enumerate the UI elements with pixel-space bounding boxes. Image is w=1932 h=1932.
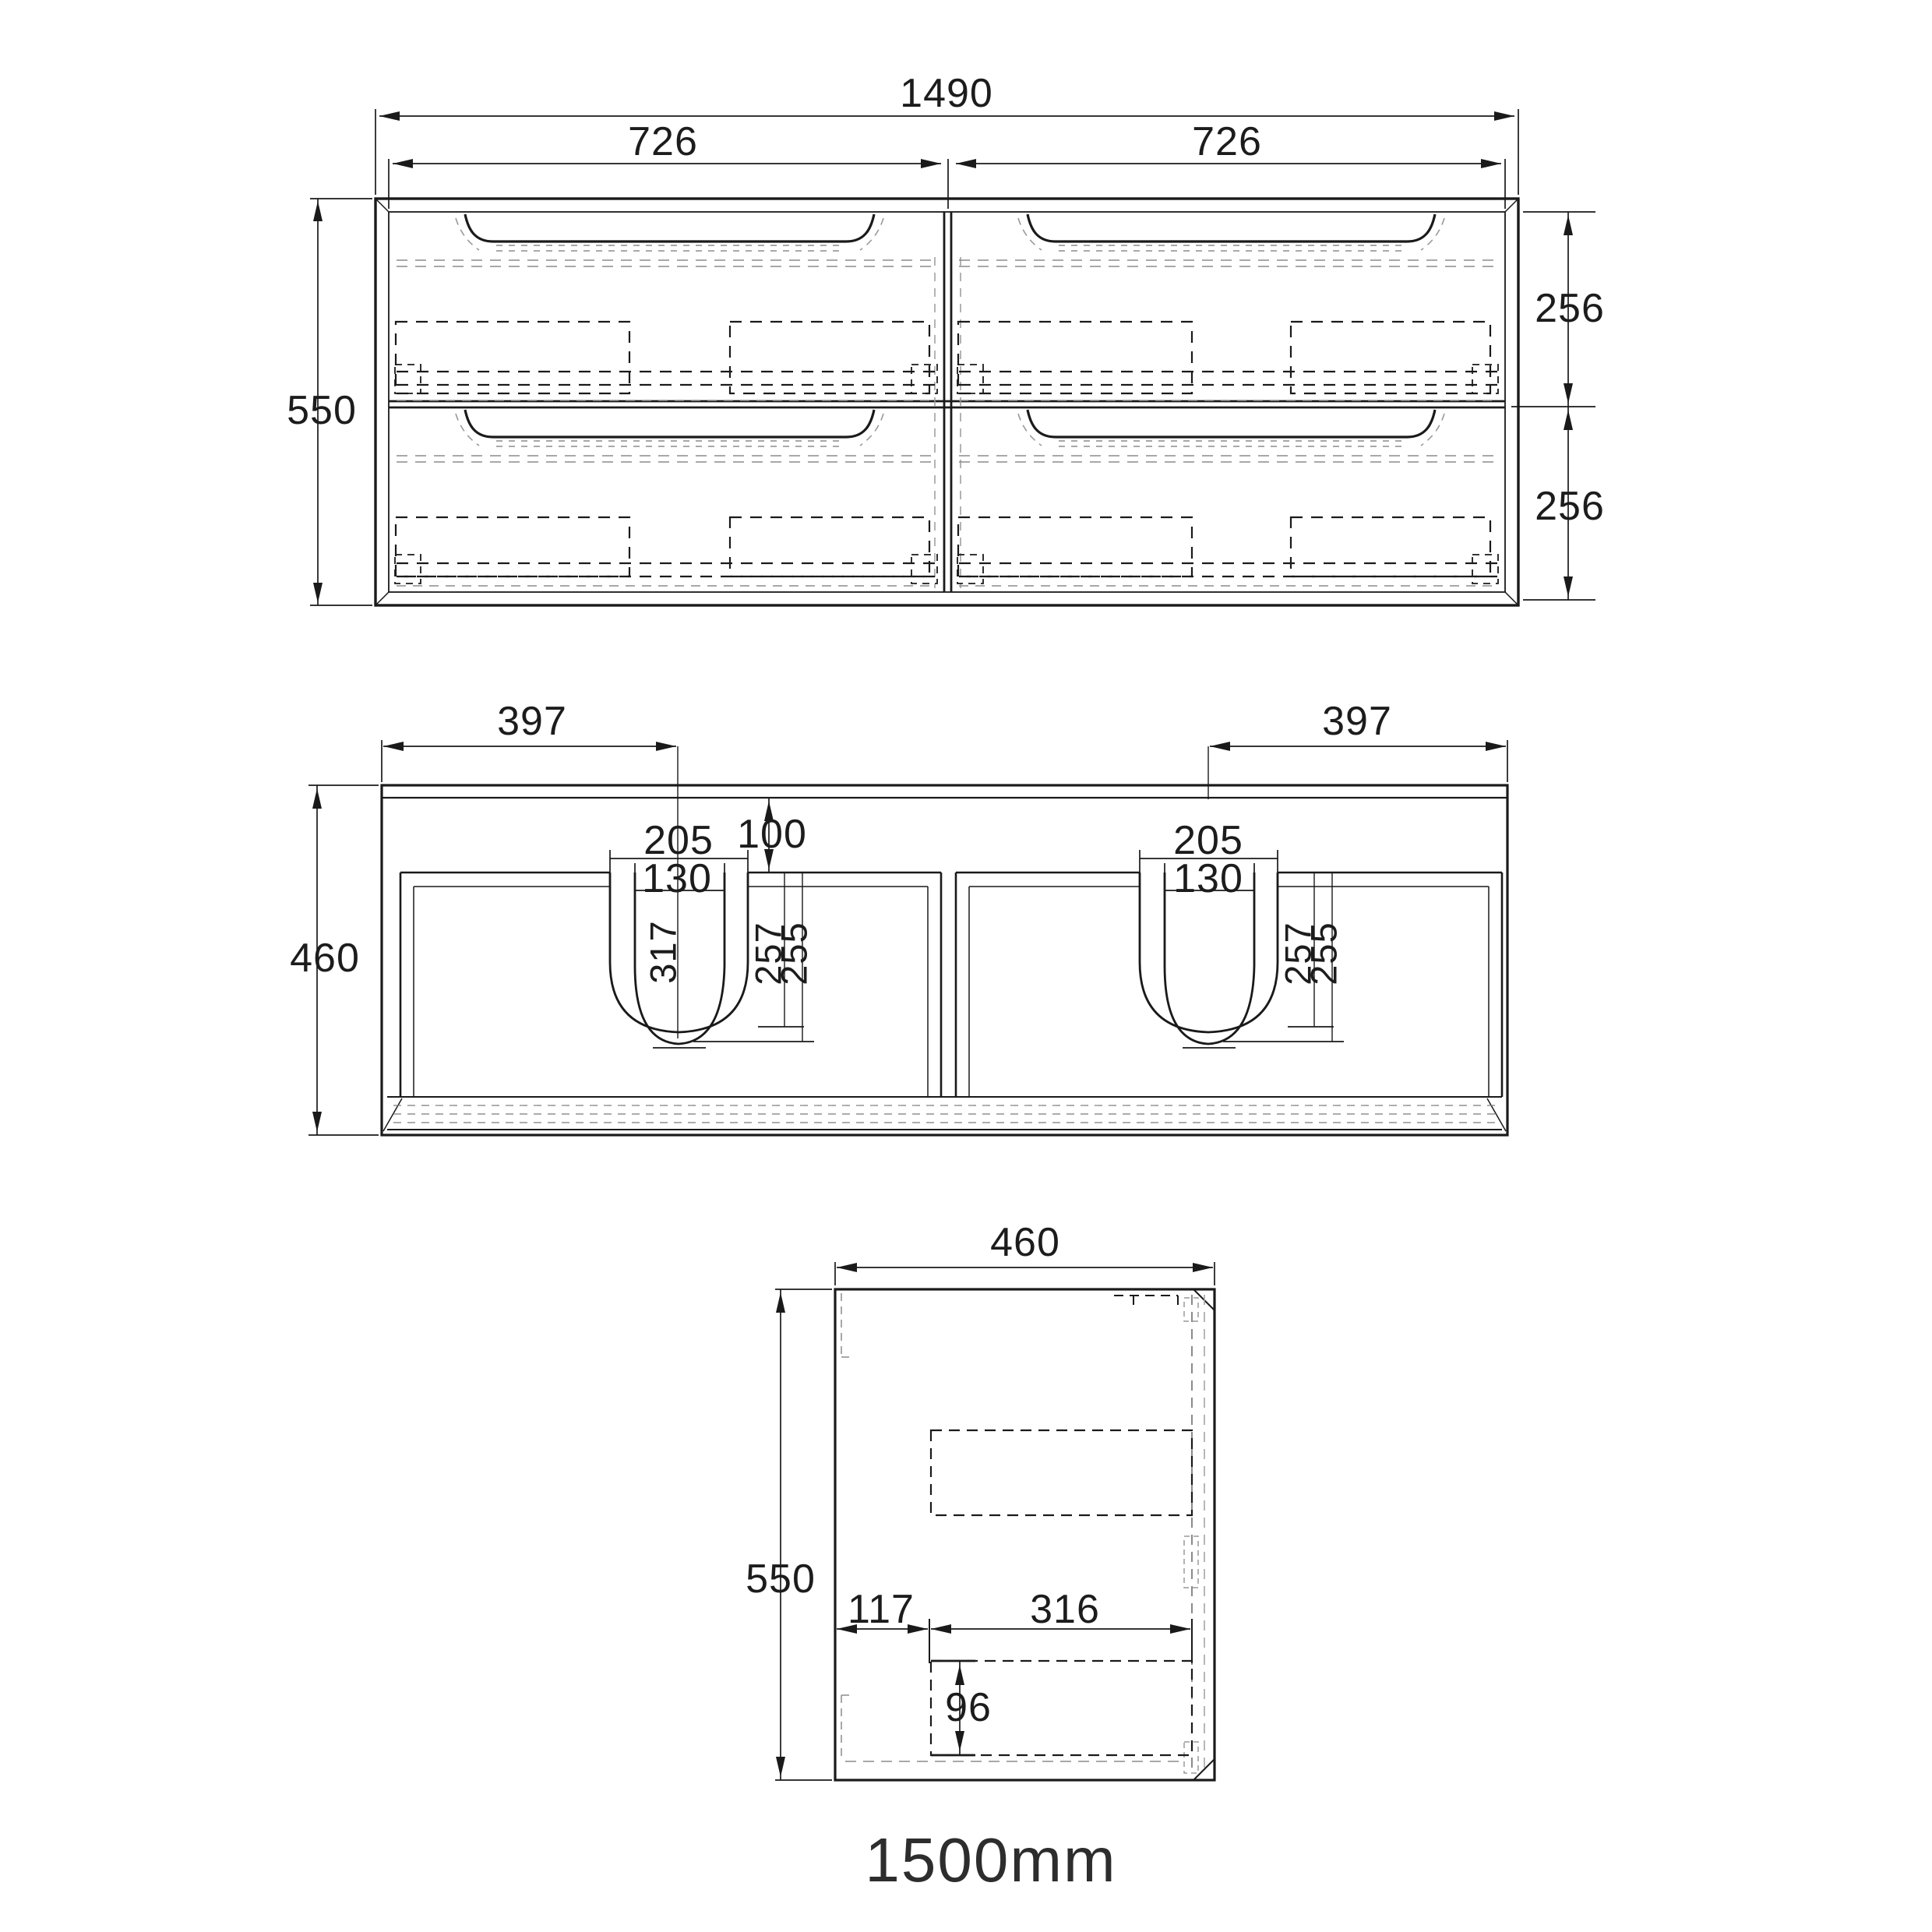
- dim-section-height: 460: [290, 938, 360, 978]
- dim-left-basin-cutout: 130: [642, 858, 712, 899]
- dim-front-right-half: 726: [1192, 122, 1262, 162]
- drawer-front-bottom-right: [957, 410, 1498, 586]
- size-caption: 1500mm: [865, 1824, 1116, 1896]
- plinth-hatch: [383, 1097, 1506, 1131]
- dim-right-basin-cutout: 130: [1173, 858, 1243, 899]
- dim-front-height: 550: [287, 390, 357, 431]
- side-view: [775, 1262, 1215, 1780]
- dim-left-basin-inner-depth: 255: [776, 922, 813, 985]
- dim-side-recess-width: 316: [1030, 1589, 1100, 1630]
- dim-front-top-drawer: 256: [1535, 288, 1605, 329]
- dim-right-basin-rim: 205: [1173, 820, 1243, 861]
- dim-front-left-half: 726: [628, 122, 698, 162]
- vanity-technical-drawing-page: 1490 726 726 550 256 256 397 397 460 205…: [0, 0, 1932, 1932]
- dim-section-right-offset: 397: [1322, 701, 1392, 742]
- dim-left-basin-rim: 205: [643, 820, 714, 861]
- dim-left-basin-bowl-depth: 317: [645, 920, 682, 983]
- dimension-arrowheads: [312, 111, 1573, 1777]
- dim-side-depth: 460: [990, 1222, 1060, 1263]
- dim-left-basin-top-gap: 100: [737, 814, 807, 855]
- dim-front-overall-width: 1490: [900, 73, 993, 114]
- drawer-front-top-right: [957, 214, 1498, 400]
- front-view: [310, 109, 1595, 605]
- dim-front-bottom-drawer: 256: [1535, 486, 1605, 527]
- dim-right-basin-inner-depth: 255: [1306, 922, 1342, 985]
- dim-side-height: 550: [746, 1559, 816, 1599]
- dim-side-front-offset: 117: [848, 1589, 915, 1630]
- drawer-box-dashed-upper: [931, 1430, 1192, 1515]
- drawer-front-bottom-left: [395, 410, 937, 586]
- dim-side-recess-height: 96: [945, 1687, 992, 1728]
- drawer-front-top-left: [395, 214, 937, 400]
- dim-section-left-offset: 397: [497, 701, 567, 742]
- front-view-dimensions: [310, 109, 1595, 605]
